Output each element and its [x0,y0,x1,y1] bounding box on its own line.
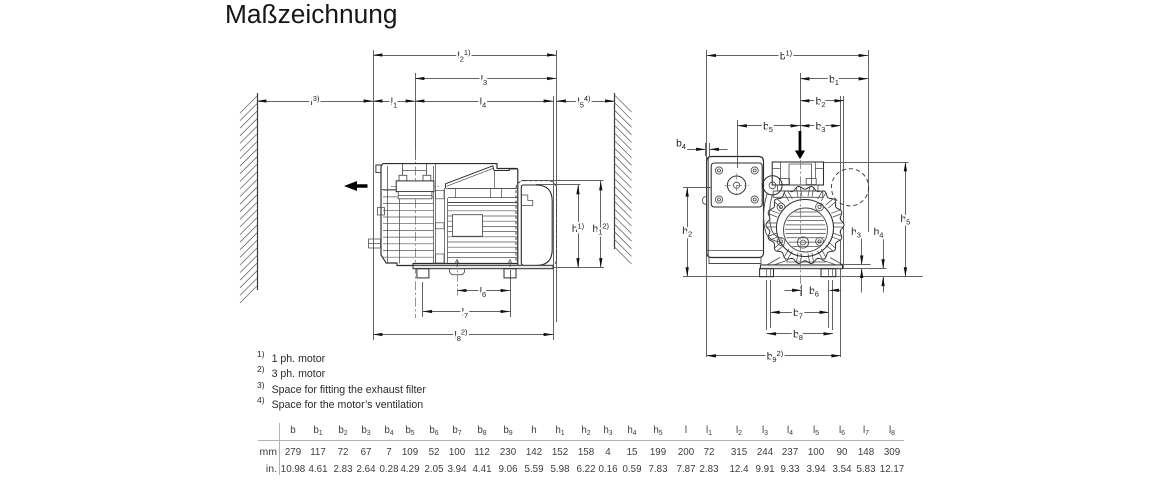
svg-text:l3: l3 [481,74,487,87]
svg-text:b2: b2 [816,97,826,110]
svg-text:b8: b8 [793,330,803,343]
svg-text:h5: h5 [900,214,910,227]
svg-text:b1): b1) [780,49,793,63]
svg-text:l82): l82) [454,328,468,343]
svg-text:l1: l1 [391,97,397,110]
svg-text:l21): l21) [457,48,471,63]
svg-text:l4: l4 [480,97,486,110]
svg-text:b1: b1 [829,75,839,88]
svg-text:l7: l7 [462,307,468,320]
svg-text:b7: b7 [793,308,803,321]
svg-text:h3: h3 [851,227,861,240]
svg-text:b6: b6 [809,286,819,299]
svg-text:h12): h12) [593,221,610,236]
svg-text:b5: b5 [763,122,773,135]
svg-text:b92): b92) [767,349,784,364]
svg-text:l54): l54) [577,94,591,109]
svg-text:b3: b3 [816,122,826,135]
svg-text:l6: l6 [480,286,486,299]
svg-text:l3): l3) [311,94,320,108]
svg-text:h4: h4 [874,227,884,240]
svg-text:b4: b4 [676,139,686,152]
svg-text:h2: h2 [682,226,692,239]
